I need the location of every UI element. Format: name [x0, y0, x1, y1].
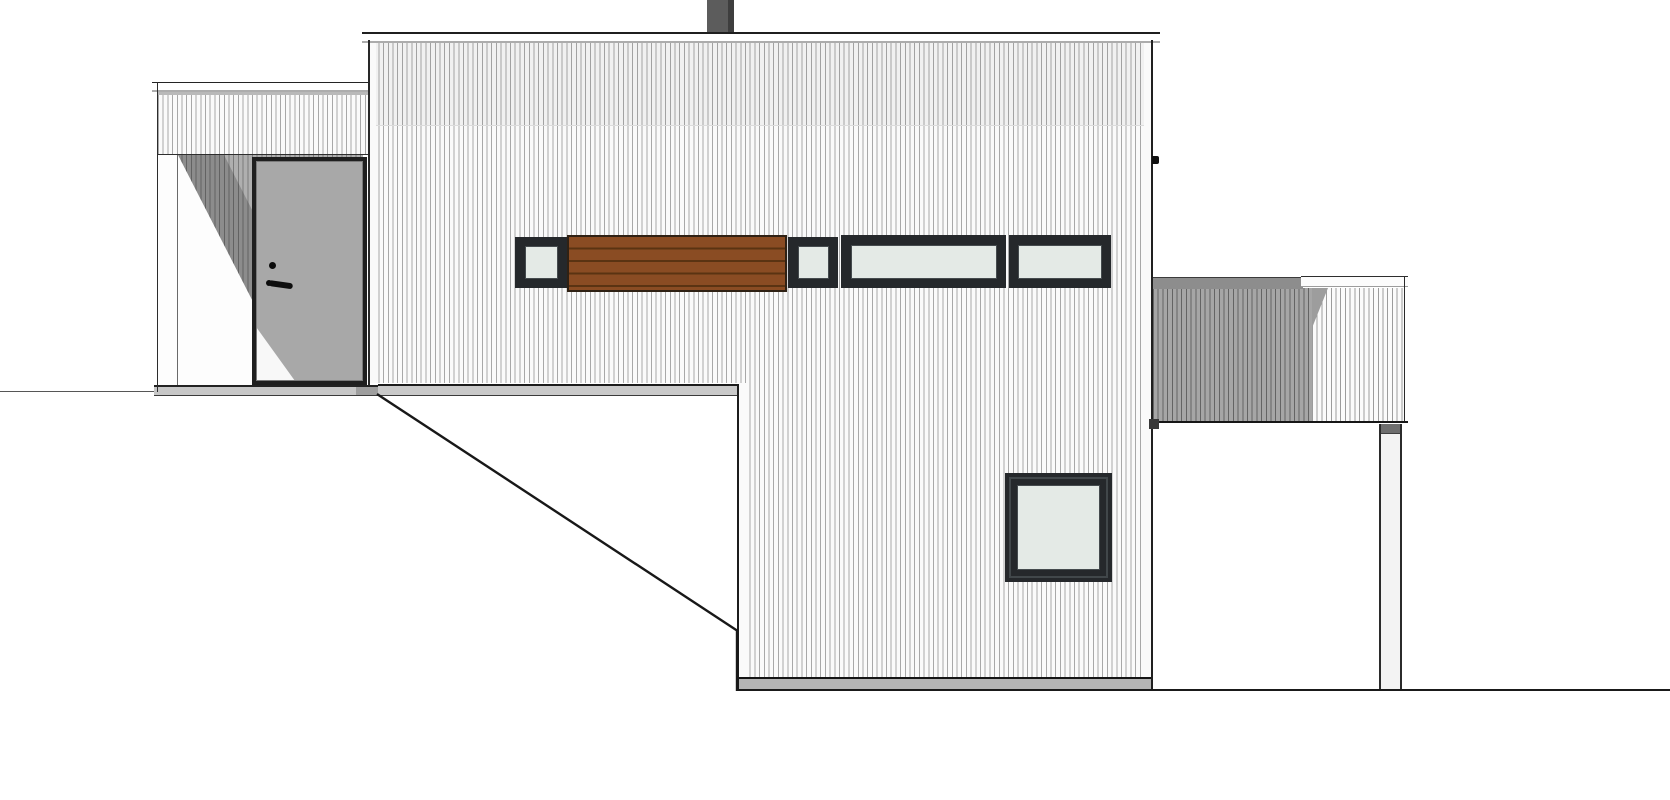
- ground-line-right: [737, 689, 1670, 691]
- wall-edge-bracket-tick: [1152, 156, 1159, 164]
- ground-line-left: [0, 391, 154, 392]
- ground-slope-line: [0, 0, 1670, 800]
- elevation-drawing-canvas: [0, 0, 1670, 800]
- deck-wall-junction-mark: [1149, 419, 1159, 429]
